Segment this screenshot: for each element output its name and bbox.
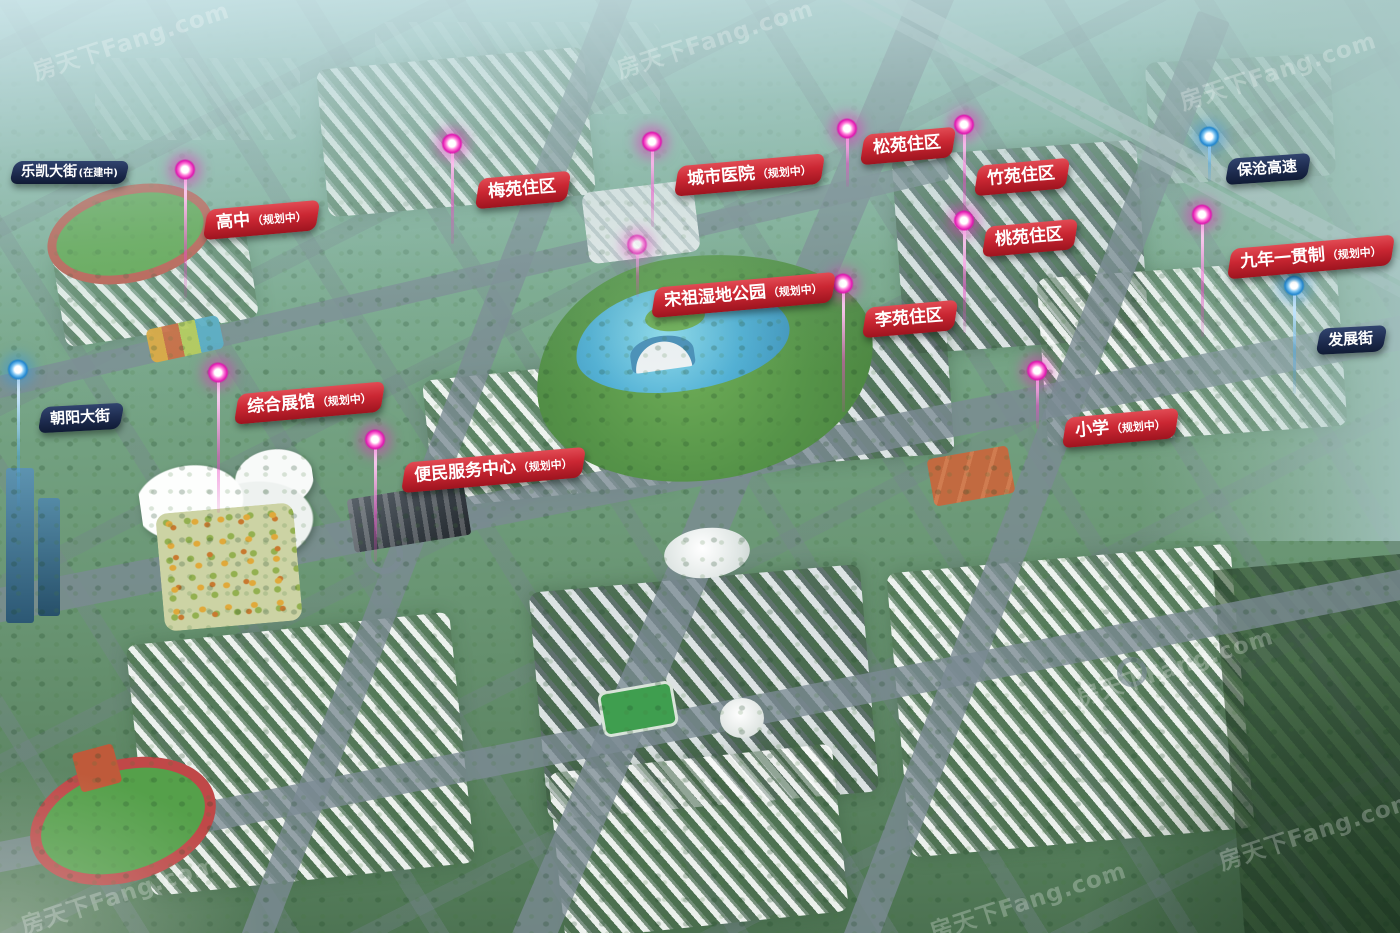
map-decor-hazy-blocks xyxy=(95,58,300,140)
map-label-fazhan-street: 发展街 xyxy=(1315,325,1387,355)
map-dome-building xyxy=(720,698,764,738)
map-label-lekai-street: 乐凯大街(在建中) xyxy=(9,161,130,184)
map-tower-building xyxy=(6,468,34,623)
map-label-chaoyang-street: 朝阳大街 xyxy=(37,403,124,434)
map-tower-building xyxy=(38,498,60,616)
aerial-map: 房天下Fang.com 房天下Fang.com 房天下Fang.com 房天下F… xyxy=(0,0,1400,933)
map-autumn-tree-plaza xyxy=(155,502,303,632)
map-roundabout xyxy=(1117,657,1147,687)
